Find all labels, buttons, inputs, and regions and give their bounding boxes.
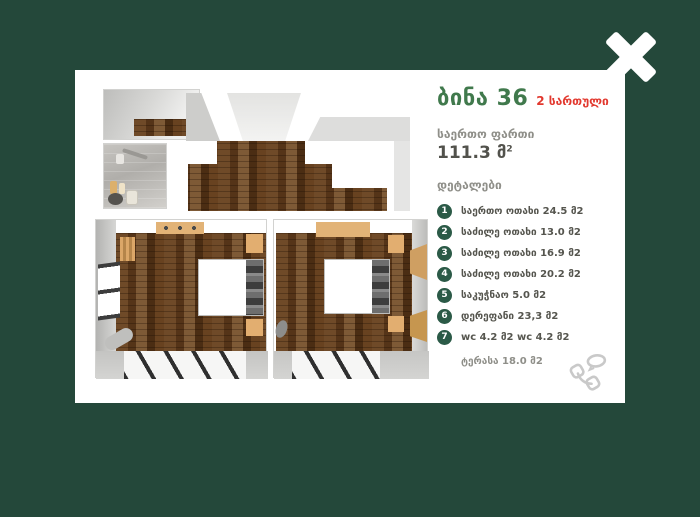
desk xyxy=(156,222,204,234)
apartment-modal-card: ბინა 36 2 სართული საერთო ფართი 111.3 მ2 … xyxy=(75,70,625,403)
bathroom-jar xyxy=(126,190,138,205)
window-panes xyxy=(124,351,246,379)
total-area-label: საერთო ფართი xyxy=(437,127,612,141)
wardrobe xyxy=(120,237,135,261)
detail-number-badge: 1 xyxy=(437,204,452,219)
phone-icon[interactable] xyxy=(564,348,614,398)
total-area-value: 111.3 მ2 xyxy=(437,143,612,163)
room-bedroom-right xyxy=(273,219,428,378)
apartment-title: ბინა 36 xyxy=(437,86,528,111)
wall-shading xyxy=(394,141,410,211)
detail-row: 3 საძილე ოთახი 16.9 მ2 xyxy=(437,243,612,264)
details-list: 1 საერთო ოთახი 24.5 მ2 2 საძილე ოთახი 13… xyxy=(437,201,612,348)
detail-number-badge: 3 xyxy=(437,246,452,261)
floor-badge: 2 სართული xyxy=(536,94,609,108)
bed xyxy=(324,259,390,314)
floor-plan-image xyxy=(90,86,430,378)
bathroom-basket xyxy=(108,193,123,205)
side-window xyxy=(98,261,120,320)
detail-row: 7 wc 4.2 მ2 wc 4.2 მ2 xyxy=(437,327,612,348)
apartment-info-panel: ბინა 36 2 სართული საერთო ფართი 111.3 მ2 … xyxy=(437,86,612,367)
window-wall xyxy=(96,351,268,379)
detail-row: 5 საკუჭნაო 5.0 მ2 xyxy=(437,285,612,306)
pillows xyxy=(246,260,263,315)
wall-shading xyxy=(308,117,410,141)
nightstand xyxy=(388,316,404,332)
detail-number-badge: 6 xyxy=(437,309,452,324)
nightstand xyxy=(388,235,404,253)
detail-label: საძილე ოთახი 13.0 მ2 xyxy=(461,227,581,238)
detail-label: საერთო ოთახი 24.5 მ2 xyxy=(461,206,583,217)
window-panes xyxy=(292,351,380,379)
detail-row: 2 საძილე ოთახი 13.0 მ2 xyxy=(437,222,612,243)
dresser xyxy=(316,222,370,237)
window-wall xyxy=(274,351,429,379)
bathroom-bottle xyxy=(119,183,125,194)
shower-arm xyxy=(122,148,148,160)
pillows xyxy=(372,260,389,313)
detail-number-badge: 5 xyxy=(437,288,452,303)
nightstand xyxy=(246,319,263,336)
detail-label: საკუჭნაო 5.0 მ2 xyxy=(461,290,546,301)
room-living-area xyxy=(170,89,414,216)
nightstand xyxy=(246,234,263,253)
detail-row: 6 დერეფანი 23,3 მ2 xyxy=(437,306,612,327)
wall-shading xyxy=(186,93,220,141)
detail-row: 1 საერთო ოთახი 24.5 მ2 xyxy=(437,201,612,222)
total-area-number: 111.3 მ xyxy=(437,143,506,163)
shower-head xyxy=(116,154,124,164)
detail-label: საძილე ოთახი 20.2 მ2 xyxy=(461,269,581,280)
detail-label: საძილე ოთახი 16.9 მ2 xyxy=(461,248,581,259)
detail-number-badge: 4 xyxy=(437,267,452,282)
close-button[interactable] xyxy=(598,24,664,90)
wall-shading xyxy=(220,93,308,141)
title-row: ბინა 36 2 სართული xyxy=(437,86,612,111)
area-superscript: 2 xyxy=(506,144,512,154)
room-bathroom xyxy=(103,143,167,209)
bed xyxy=(198,259,264,316)
details-heading: დეტალები xyxy=(437,178,612,192)
room-bedroom-left xyxy=(95,219,267,378)
detail-label: wc 4.2 მ2 wc 4.2 მ2 xyxy=(461,332,569,343)
detail-number-badge: 2 xyxy=(437,225,452,240)
detail-row: 4 საძილე ოთახი 20.2 მ2 xyxy=(437,264,612,285)
detail-number-badge: 7 xyxy=(437,330,452,345)
detail-label: დერეფანი 23,3 მ2 xyxy=(461,311,558,322)
